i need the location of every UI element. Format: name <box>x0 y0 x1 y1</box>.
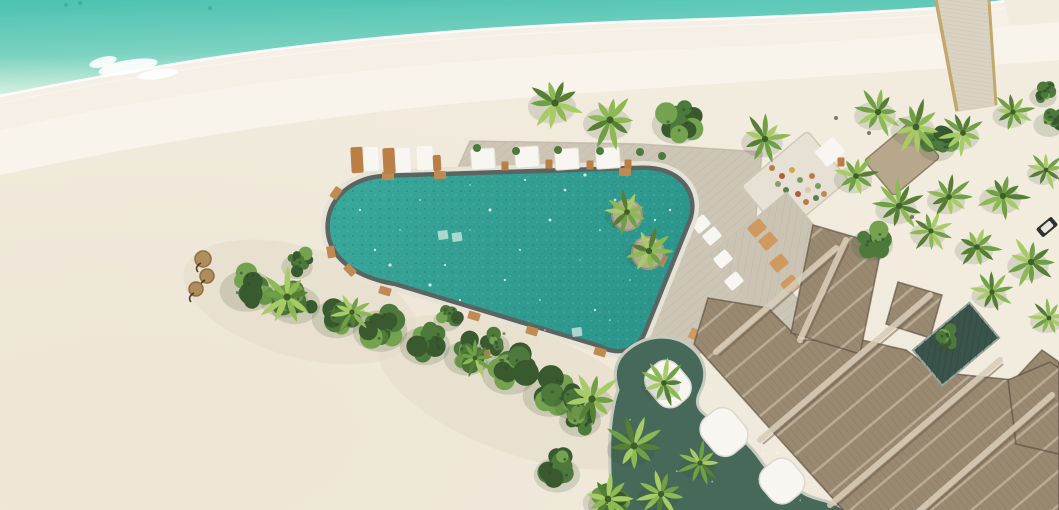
ground-object <box>910 215 914 219</box>
aerial-resort-photo <box>0 0 1059 510</box>
dining-table <box>803 199 809 205</box>
pool-sparkle <box>388 263 391 266</box>
dining-table <box>779 173 785 179</box>
pool-sparkle <box>504 279 506 281</box>
rim-accent <box>434 171 446 179</box>
dining-table <box>813 195 819 201</box>
dining-table <box>769 165 775 171</box>
pool-sparkle <box>609 319 611 321</box>
sun-lounger <box>363 147 379 172</box>
pool-sparkle <box>488 208 491 211</box>
pool-sparkle <box>459 299 461 301</box>
rim-accent <box>619 168 631 176</box>
deck-plant <box>658 152 666 160</box>
pool-step <box>437 230 448 240</box>
pool-sparkle <box>499 319 500 320</box>
pool-sparkle <box>549 219 552 222</box>
pool-sparkle <box>564 189 567 192</box>
ground-object <box>867 131 871 135</box>
dining-table <box>805 187 811 193</box>
ground-object <box>834 116 838 120</box>
sun-lounger <box>350 147 363 174</box>
pool-sparkle <box>428 283 431 286</box>
pool-sparkle <box>629 279 631 281</box>
lounger-side-table <box>546 160 553 169</box>
sun-lounger <box>382 148 395 175</box>
lounger-side-table <box>502 162 509 171</box>
deck-plant <box>512 147 520 155</box>
dining-table <box>797 177 803 183</box>
pool-sparkle <box>519 249 521 251</box>
pool-sparkle <box>359 209 361 211</box>
pool-sparkle <box>419 199 421 201</box>
sun-lounger <box>395 148 411 173</box>
pool-sparkle <box>374 249 376 251</box>
pool-sparkle <box>539 299 541 301</box>
beach-parasol <box>189 282 203 296</box>
pool-sparkle <box>469 184 470 185</box>
dining-table <box>809 173 815 179</box>
lounger-side-table <box>587 161 594 170</box>
pool-sparkle <box>654 219 656 221</box>
pool-sparkle <box>594 309 596 311</box>
lounger-side-table <box>625 160 632 169</box>
pool-sparkle <box>544 329 546 331</box>
dining-table <box>789 167 795 173</box>
dining-table <box>795 191 801 197</box>
pool-sparkle <box>583 173 586 176</box>
deck-plant <box>636 148 644 156</box>
pool-sparkle <box>579 259 580 260</box>
deck-plant <box>554 146 562 154</box>
lounger-side-table <box>838 158 845 167</box>
deck-plant <box>596 147 604 155</box>
sun-lounger <box>470 148 495 171</box>
pool-sparkle <box>399 229 400 230</box>
pool-sparkle <box>599 229 601 231</box>
pool-sparkle <box>444 264 446 266</box>
dining-table <box>821 191 827 197</box>
beach-parasol <box>195 251 211 267</box>
pool-sparkle <box>614 199 617 202</box>
resort-scene-canvas <box>0 0 1059 510</box>
dining-table <box>815 183 821 189</box>
pool-sparkle <box>669 209 671 211</box>
sun-lounger <box>433 155 442 171</box>
sun-lounger <box>416 146 433 171</box>
deck-plant <box>473 144 481 152</box>
pool-sparkle <box>524 179 526 181</box>
pool-step <box>451 232 462 242</box>
dining-table <box>775 181 781 187</box>
pool-sparkle <box>469 229 470 230</box>
beach-parasol <box>200 269 214 283</box>
pool-step <box>571 327 582 337</box>
